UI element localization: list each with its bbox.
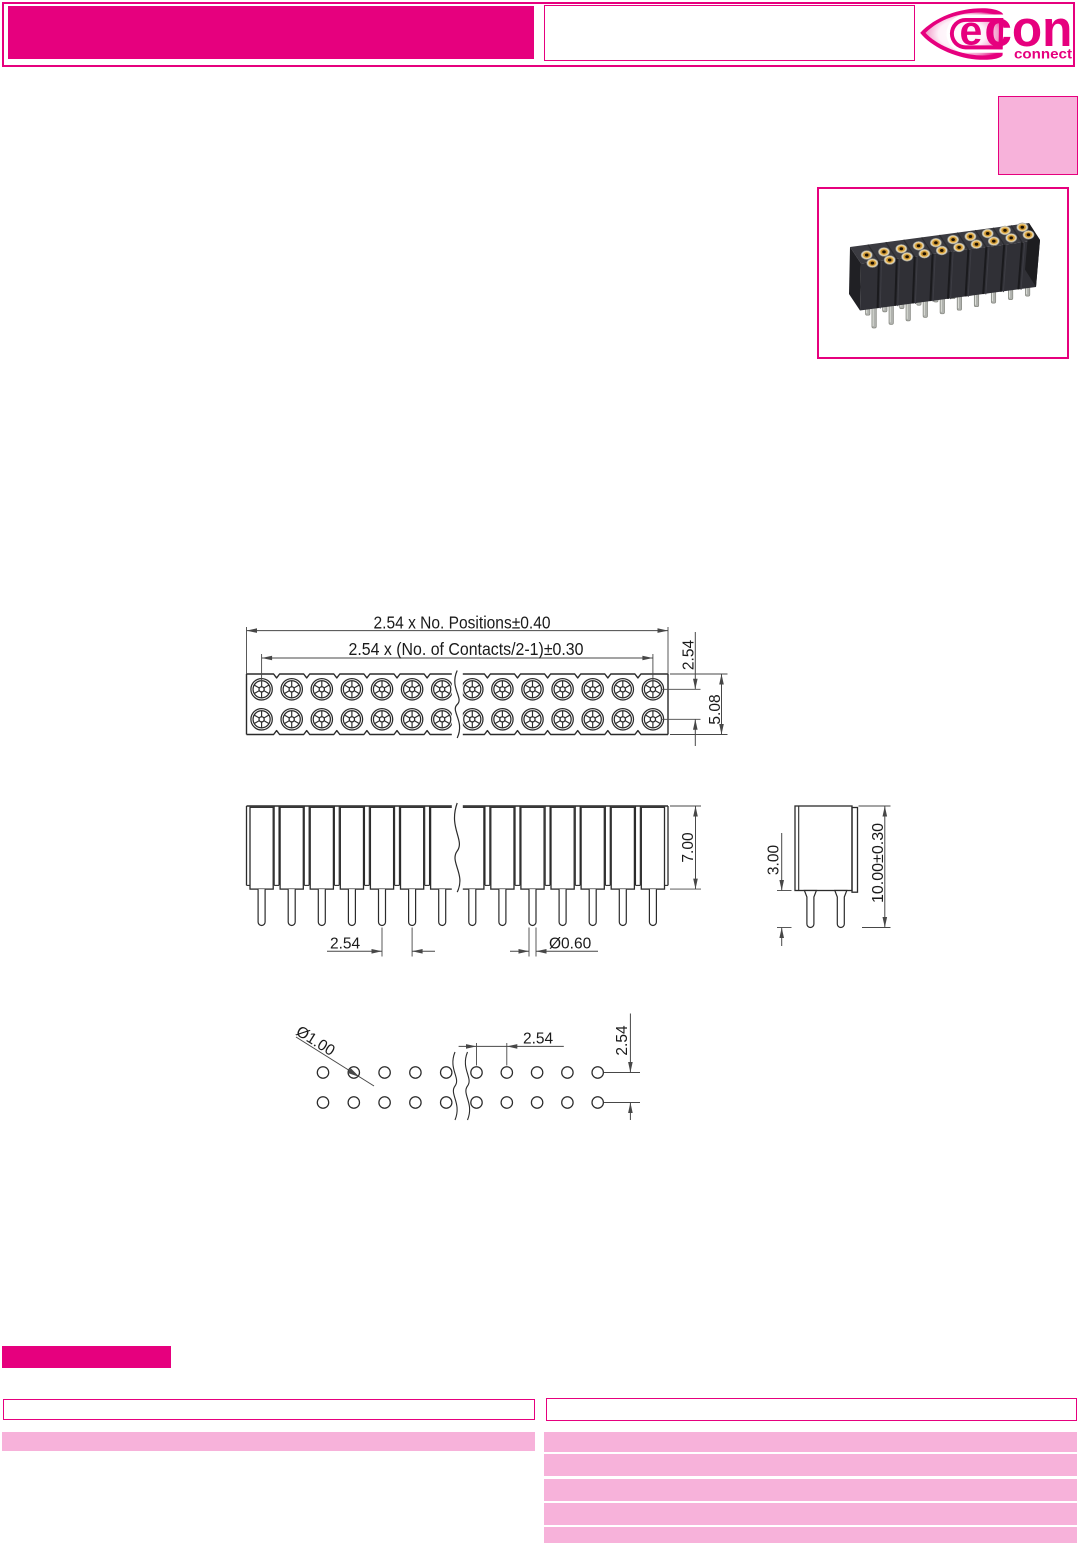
- svg-text:5.08: 5.08: [707, 694, 724, 724]
- svg-text:3.00: 3.00: [765, 845, 782, 876]
- svg-text:Ø0.60: Ø0.60: [549, 936, 592, 953]
- svg-text:7.00: 7.00: [680, 832, 697, 863]
- svg-text:Ø1.00: Ø1.00: [293, 1023, 338, 1060]
- svg-text:2.54: 2.54: [681, 640, 698, 671]
- svg-text:2.54 x (No. of Contacts/2-1)±0: 2.54 x (No. of Contacts/2-1)±0.30: [349, 639, 584, 659]
- svg-text:10.00±0.30: 10.00±0.30: [870, 823, 887, 903]
- svg-text:2.54: 2.54: [330, 936, 361, 953]
- svg-text:2.54: 2.54: [614, 1025, 631, 1056]
- svg-text:2.54: 2.54: [523, 1031, 554, 1048]
- svg-text:2.54 x No. Positions±0.40: 2.54 x No. Positions±0.40: [374, 612, 551, 632]
